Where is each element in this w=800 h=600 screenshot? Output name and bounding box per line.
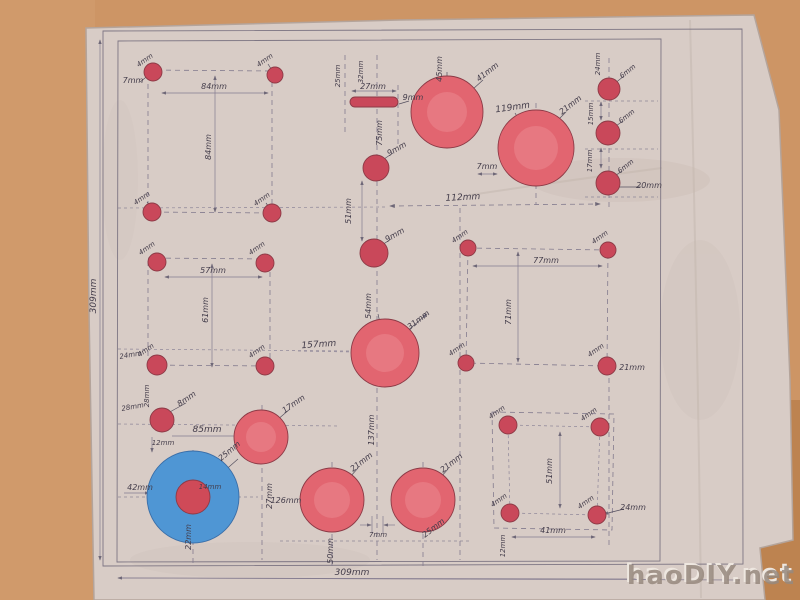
- dim-label: 14mm: [199, 483, 222, 491]
- hole-4mm: [263, 204, 281, 222]
- slot-27mm: [350, 97, 398, 107]
- watermark: haoDIY.net haoDIY.net: [625, 559, 795, 591]
- dim-label: 71mm: [504, 299, 513, 325]
- dim-label: 12mm: [499, 535, 507, 558]
- disc-highlight: [427, 92, 467, 132]
- wall-left-tile: [0, 0, 95, 600]
- dim-label: 126mm: [271, 496, 302, 505]
- disc-highlight: [314, 482, 350, 518]
- disc-highlight: [514, 126, 558, 170]
- hole-4mm: [147, 355, 167, 375]
- hole-4mm: [148, 253, 166, 271]
- hole-6mm: [596, 171, 620, 195]
- dim-label: 32mm: [357, 61, 365, 84]
- dim-label: 84mm: [204, 134, 213, 160]
- dim-label: 45mm: [435, 56, 444, 82]
- watermark-text: haoDIY.net: [627, 561, 795, 591]
- hole-9mm: [360, 239, 388, 267]
- dim-label: 21mm: [619, 363, 645, 372]
- dim-label: 24mm: [620, 503, 646, 512]
- hole-4mm: [499, 416, 517, 434]
- dim-label: 51mm: [344, 198, 353, 224]
- hole-9mm: [363, 155, 389, 181]
- dim-label: 7mm: [369, 531, 387, 539]
- overall-height-label: 309mm: [89, 278, 99, 313]
- diagram-canvas: 7mm 4mm 4mm 4mm 4mm 84mm 84mm 4mm 4mm 4m…: [0, 0, 800, 600]
- dim-label: 75mm: [375, 120, 384, 146]
- hole-4mm: [501, 504, 519, 522]
- dim-label: 15mm: [587, 103, 595, 126]
- hole-4mm: [458, 355, 474, 371]
- hole-4mm: [143, 203, 161, 221]
- hole-8mm: [150, 408, 174, 432]
- dim-label: 51mm: [545, 458, 554, 484]
- hole-6mm: [598, 78, 620, 100]
- dim-label: 20mm: [636, 181, 662, 190]
- dim-label: 77mm: [533, 256, 559, 265]
- dim-label: 57mm: [200, 266, 226, 275]
- disc-highlight: [246, 422, 276, 452]
- dim-label: 24mm: [594, 53, 602, 76]
- hole-4mm: [591, 418, 609, 436]
- dim-label: 9mm: [403, 93, 424, 102]
- dim-label: 41mm: [540, 526, 566, 535]
- hole-4mm: [256, 254, 274, 272]
- hole-6mm: [596, 121, 620, 145]
- hole-4mm: [598, 357, 616, 375]
- hole-4mm: [267, 67, 283, 83]
- hole-4mm: [256, 357, 274, 375]
- overall-width-label: 309mm: [335, 568, 370, 578]
- dim-label: 84mm: [201, 82, 227, 91]
- dim-label: 17mm: [586, 150, 594, 173]
- hole-4mm: [144, 63, 162, 81]
- hole-4mm: [588, 506, 606, 524]
- dim-label: 7mm: [477, 162, 498, 171]
- dim-label: 137mm: [367, 414, 376, 445]
- hole-4mm: [460, 240, 476, 256]
- dim-label: 50mm: [326, 538, 335, 564]
- dim-label: 54mm: [364, 293, 373, 319]
- dim-label: 7mm: [123, 76, 144, 85]
- dim-label: 25mm: [334, 65, 342, 88]
- hole-4mm: [600, 242, 616, 258]
- dim-label: 42mm: [127, 483, 153, 492]
- dim-label: 22mm: [184, 524, 193, 550]
- disc-highlight: [366, 334, 404, 372]
- dim-label: 85mm: [193, 425, 222, 435]
- disc-highlight: [405, 482, 441, 518]
- dim-label: 28mm: [143, 385, 151, 408]
- dim-label: 112mm: [445, 192, 480, 204]
- dim-label: 61mm: [201, 297, 210, 323]
- photo-of-drawing: 7mm 4mm 4mm 4mm 4mm 84mm 84mm 4mm 4mm 4m…: [0, 0, 800, 600]
- dim-label: 12mm: [152, 439, 175, 447]
